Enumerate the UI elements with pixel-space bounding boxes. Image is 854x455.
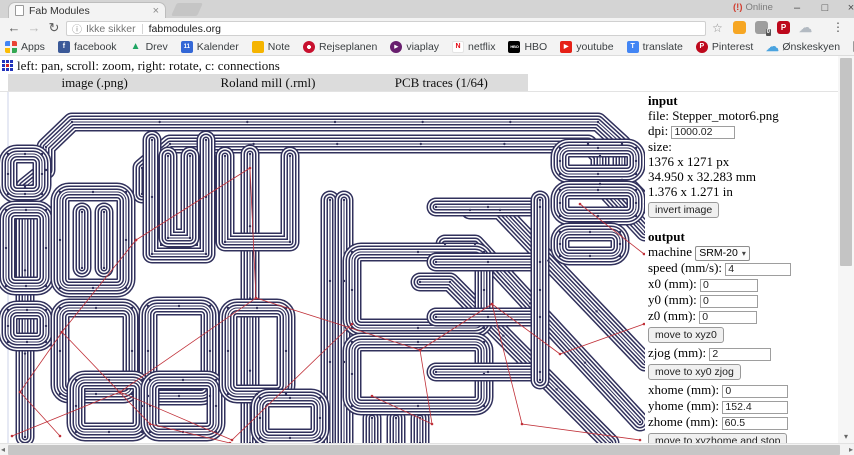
window-close-button[interactable]: × [840, 0, 854, 17]
vertical-scrollbar-thumb[interactable] [840, 58, 852, 266]
keep-note-icon [252, 41, 264, 53]
translate-icon: T [627, 41, 639, 53]
chevron-down-icon: ▾ [742, 249, 746, 258]
browser-tab[interactable]: Fab Modules × [8, 2, 166, 18]
machine-label: machine [648, 244, 692, 259]
bookmark-item[interactable]: viaplay [390, 41, 439, 53]
bookmark-label: Apps [21, 41, 45, 53]
onskeskyen-cloud-icon [766, 41, 778, 53]
extension-icons: 0P☁ [733, 21, 812, 34]
bookmark-item[interactable]: Ønskeskyen [766, 41, 840, 53]
zhome-label: zhome (mm): [648, 414, 718, 429]
address-bar[interactable]: ⓘ Ikke sikker fabmodules.org [66, 21, 706, 36]
y0-input[interactable] [700, 295, 758, 308]
browser-menu-icon[interactable]: ⋮ [832, 20, 844, 34]
input-section-title: input [648, 94, 838, 108]
scroll-right-icon[interactable]: ▸ [849, 445, 853, 455]
xhome-label: xhome (mm): [648, 382, 719, 397]
honey-extension-icon[interactable] [733, 21, 746, 34]
bookmark-item[interactable]: Note [252, 41, 290, 53]
apps-grid-icon [5, 41, 17, 53]
youtube-icon [560, 41, 572, 53]
x0-label: x0 (mm): [648, 276, 697, 291]
page-favicon-icon [15, 5, 24, 16]
viaplay-icon [390, 41, 402, 53]
bookmark-label: youtube [576, 41, 613, 53]
url-text[interactable]: fabmodules.org [149, 23, 221, 35]
machine-select[interactable]: SRM-20▾ [695, 246, 750, 261]
netflix-icon: N [452, 41, 464, 53]
size-mm: 34.950 x 32.283 mm [648, 169, 838, 184]
size-px: 1376 x 1271 px [648, 154, 838, 169]
x0-input[interactable] [700, 279, 758, 292]
bookmark-label: translate [643, 41, 683, 53]
bookmark-item[interactable]: Apps [5, 41, 45, 53]
bookmark-item[interactable]: Drev [130, 41, 168, 53]
z0-input[interactable] [699, 311, 757, 324]
bookmark-label: Pinterest [712, 41, 753, 53]
speed-label: speed (mm/s): [648, 260, 722, 275]
tab-image-png[interactable]: image (.png) [8, 74, 181, 91]
yhome-input[interactable] [722, 401, 788, 414]
file-label: file: [648, 108, 669, 123]
dpi-input[interactable] [671, 126, 735, 139]
horizontal-scrollbar[interactable]: ◂ ▸ [0, 443, 854, 455]
browser-status: (!)Online [733, 2, 773, 13]
hbo-icon: HBO [508, 41, 520, 53]
xhome-input[interactable] [722, 385, 788, 398]
bookmark-label: Kalender [197, 41, 239, 53]
module-tabs: image (.png) Roland mill (.rml) PCB trac… [8, 74, 528, 91]
file-value: Stepper_motor6.png [672, 108, 779, 123]
yhome-label: yhome (mm): [648, 398, 719, 413]
bookmark-label: Drev [146, 41, 168, 53]
new-tab-button[interactable] [171, 3, 203, 16]
tab-title: Fab Modules [29, 5, 149, 17]
tab-close-icon[interactable]: × [153, 5, 159, 17]
move-to-xyz0-button[interactable]: move to xyz0 [648, 327, 724, 343]
calendar-icon: 11 [181, 41, 193, 53]
machine-value: SRM-20 [699, 247, 738, 259]
speed-input[interactable] [725, 263, 791, 276]
dpi-label: dpi: [648, 123, 668, 138]
pinterest-icon: P [696, 41, 708, 53]
omnibox-divider [142, 24, 143, 34]
fab-modules-logo-icon [2, 60, 13, 71]
cloud-extension-icon[interactable]: ☁ [799, 21, 812, 34]
window-minimize-button[interactable]: – [786, 0, 808, 17]
zjog-input[interactable] [709, 348, 771, 361]
toolpath-canvas[interactable] [0, 92, 645, 443]
horizontal-scrollbar-thumb[interactable] [8, 445, 840, 455]
status-alert-icon: (!) [733, 2, 743, 13]
bookmark-item[interactable]: Rejseplanen [303, 41, 377, 53]
window-maximize-button[interactable]: □ [814, 0, 836, 17]
status-text: Online [746, 2, 773, 13]
tab-roland-mill[interactable]: Roland mill (.rml) [181, 74, 354, 91]
move-to-xy0-zjog-button[interactable]: move to xy0 zjog [648, 364, 741, 380]
zhome-input[interactable] [722, 417, 788, 430]
control-panel: input file: Stepper_motor6.png dpi: size… [648, 93, 838, 455]
scroll-down-icon[interactable]: ▾ [838, 432, 854, 441]
pinterest-extension-icon[interactable]: P [777, 21, 790, 34]
size-in: 1.376 x 1.271 in [648, 184, 838, 199]
bookmark-label: Rejseplanen [319, 41, 377, 53]
vertical-scrollbar[interactable]: ▾ [838, 56, 854, 443]
bookmark-item[interactable]: 11Kalender [181, 41, 239, 53]
bookmark-star-icon[interactable]: ☆ [712, 21, 723, 35]
back-icon[interactable]: ← [6, 20, 22, 35]
bookmark-item[interactable]: Ttranslate [627, 41, 683, 53]
bookmark-label: HBO [524, 41, 547, 53]
bookmark-item[interactable]: Nnetflix [452, 41, 495, 53]
bookmark-item[interactable]: HBOHBO [508, 41, 547, 53]
invert-image-button[interactable]: invert image [648, 202, 719, 218]
reload-icon[interactable]: ↻ [46, 20, 62, 36]
bookmark-item[interactable]: youtube [560, 41, 613, 53]
browser-toolbar: ← → ↻ ⓘ Ikke sikker fabmodules.org ☆ 0P☁… [0, 18, 854, 38]
drive-triangle-icon [130, 41, 142, 53]
security-label: Ikke sikker [86, 23, 136, 35]
zjog-label: zjog (mm): [648, 345, 706, 360]
bookmarks-bar: AppsffacebookDrev11KalenderNoteRejseplan… [0, 38, 854, 56]
bookmark-item[interactable]: PPinterest [696, 41, 753, 53]
bookmark-label: viaplay [406, 41, 439, 53]
facebook-icon: f [58, 41, 70, 53]
bookmark-item[interactable]: ffacebook [58, 41, 117, 53]
bookmark-label: netflix [468, 41, 495, 53]
pcb-canvas-svg [0, 92, 645, 443]
rejseplanen-icon [303, 41, 315, 53]
y0-label: y0 (mm): [648, 292, 697, 307]
output-section-title: output [648, 230, 838, 244]
tab-pcb-traces[interactable]: PCB traces (1/64) [355, 74, 528, 91]
browser-tab-strip: Fab Modules × (!)Online – □ × [0, 0, 854, 18]
scroll-left-icon[interactable]: ◂ [1, 445, 5, 455]
bookmark-label: facebook [74, 41, 117, 53]
z0-label: z0 (mm): [648, 308, 696, 323]
canvas-hint-text: left: pan, scroll: zoom, right: rotate, … [17, 58, 280, 74]
bookmark-label: Note [268, 41, 290, 53]
forward-icon[interactable]: → [26, 20, 42, 35]
bookmark-label: Ønskeskyen [782, 41, 840, 53]
adblock-extension-icon[interactable]: 0 [755, 21, 768, 34]
site-info-icon[interactable]: ⓘ [72, 21, 82, 36]
size-label: size: [648, 139, 838, 154]
